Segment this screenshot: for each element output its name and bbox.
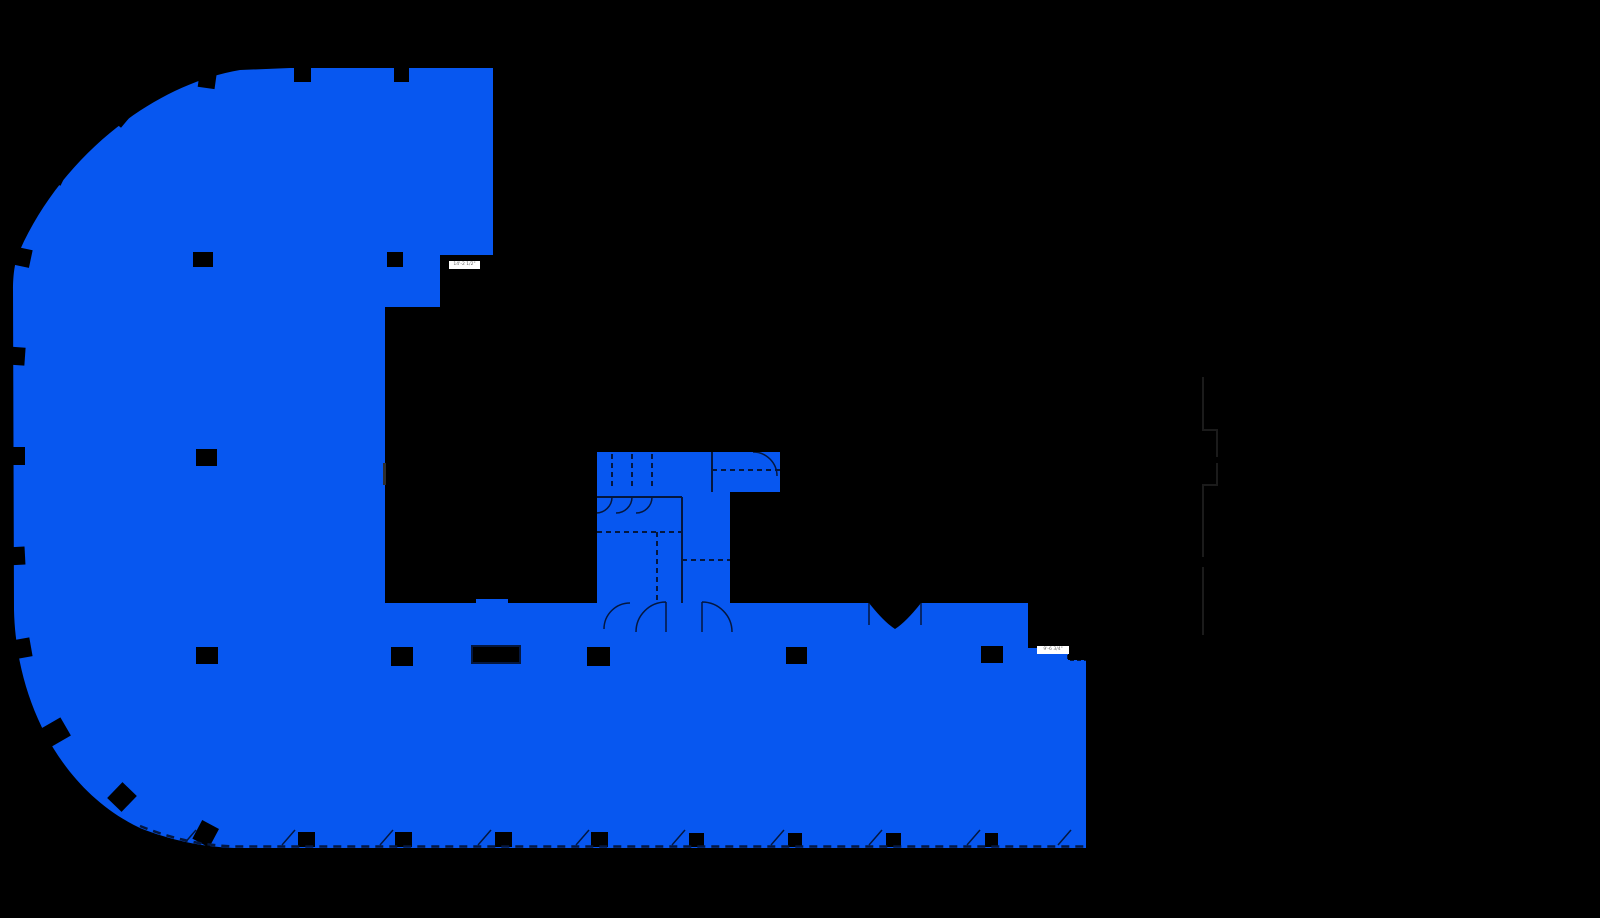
column	[5, 346, 25, 365]
floorplan-viewport: 14'-2 1/2" 9'-6 3/4"	[0, 0, 1600, 918]
column	[394, 65, 409, 82]
column	[387, 252, 403, 267]
column	[298, 832, 315, 847]
column	[6, 447, 25, 465]
column	[294, 65, 311, 82]
column	[395, 832, 412, 847]
column	[786, 647, 807, 664]
column	[495, 832, 512, 847]
column	[788, 833, 802, 847]
outlined-column	[472, 646, 520, 663]
column	[196, 647, 218, 664]
column	[391, 647, 413, 666]
dimension-label: 14'-2 1/2"	[449, 261, 480, 269]
floor-plan-svg	[0, 0, 1600, 918]
column	[689, 833, 704, 847]
column	[193, 252, 213, 267]
wall-sliver	[383, 463, 386, 485]
column	[198, 68, 217, 89]
dimension-label: 9'-6 3/4"	[1037, 646, 1069, 654]
column	[10, 637, 33, 659]
column	[591, 832, 608, 847]
column	[587, 647, 610, 666]
column	[985, 833, 998, 847]
highlighted-floor-area[interactable]	[13, 68, 1086, 848]
column	[6, 546, 26, 565]
column	[886, 833, 901, 847]
column	[981, 646, 1003, 663]
faint-plan-lines	[1203, 377, 1217, 635]
column	[196, 449, 217, 466]
